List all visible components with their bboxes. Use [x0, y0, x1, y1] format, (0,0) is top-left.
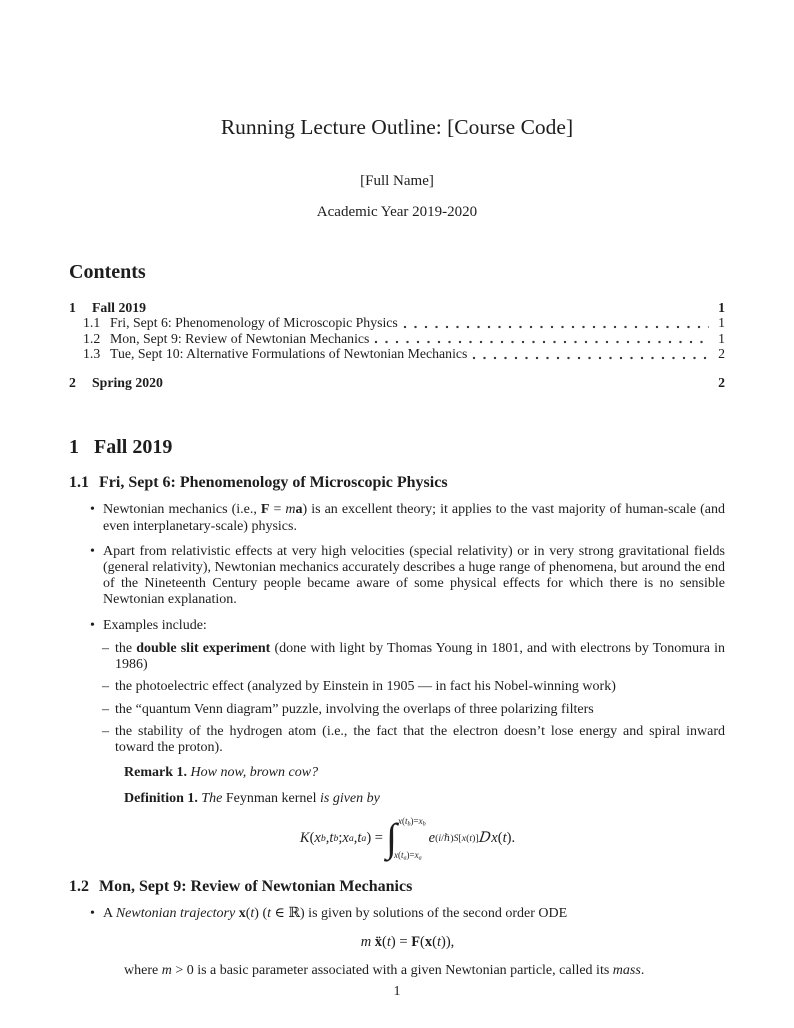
toc-entry-number: 2: [69, 375, 92, 390]
toc-entry-newtonian-review[interactable]: 1.2 Mon, Sept 9: Review of Newtonian Mec…: [69, 331, 725, 346]
subsection-title: Mon, Sept 9: Review of Newtonian Mechani…: [99, 878, 412, 895]
sub-item-double-slit: – the double slit experiment (done with …: [102, 641, 725, 673]
sub-item-text: the “quantum Venn diagram” puzzle, invol…: [115, 702, 725, 718]
subsection-heading-newtonian-review: 1.2Mon, Sept 9: Review of Newtonian Mech…: [69, 878, 725, 896]
toc-entry-page: 2: [715, 375, 725, 390]
document-page: Running Lecture Outline: [Course Code] […: [0, 0, 794, 1028]
subsection-number: 1.1: [69, 474, 89, 491]
toc-entry-page: 1: [715, 315, 725, 330]
sub-item-text: the stability of the hydrogen atom (i.e.…: [115, 724, 725, 756]
list-item-text: A Newtonian trajectory x(t) (t ∈ ℝ) is g…: [103, 906, 725, 922]
subsection-number: 1.2: [69, 878, 89, 895]
contents-heading: Contents: [69, 261, 725, 283]
toc-entry-label: Fall 2019: [92, 300, 146, 315]
bullet-icon: •: [90, 544, 103, 609]
toc-entry-number: 1.2: [83, 331, 110, 346]
toc-entry-number: 1: [69, 300, 92, 315]
list-item-text: Apart from relativistic effects at very …: [103, 544, 725, 609]
dash-icon: –: [102, 702, 115, 718]
sub-item-hydrogen-stability: – the stability of the hydrogen atom (i.…: [102, 724, 725, 756]
bullet-icon: •: [90, 618, 103, 634]
toc-entry-number: 1.1: [83, 315, 110, 330]
equation-feynman-kernel: K(xb, tb; xa, ta) = ∫x(tb)=xbx(ta)=xae(i…: [90, 815, 725, 863]
bullet-icon: •: [90, 502, 103, 534]
toc-entry-label: Spring 2020: [92, 375, 163, 390]
toc-leader: [151, 309, 709, 313]
sub-item-text: the double slit experiment (done with li…: [115, 641, 725, 673]
toc-entry-spring-2020[interactable]: 2 Spring 2020 2: [69, 375, 725, 390]
list-item-newtonian-excellent: • Newtonian mechanics (i.e., F = ma) is …: [90, 502, 725, 534]
sub-bullet-list: – the double slit experiment (done with …: [102, 641, 725, 756]
toc-entry-phenomenology[interactable]: 1.1 Fri, Sept 6: Phenomenology of Micros…: [69, 315, 725, 330]
toc-entry-page: 1: [715, 331, 725, 346]
toc-dot-leader: [374, 340, 709, 344]
subsection-heading-phenomenology: 1.1Fri, Sept 6: Phenomenology of Microsc…: [69, 474, 725, 492]
toc-entry-label: Mon, Sept 9: Review of Newtonian Mechani…: [110, 331, 369, 346]
toc-entry-label: Fri, Sept 6: Phenomenology of Microscopi…: [110, 315, 398, 330]
toc-entry-label: Tue, Sept 10: Alternative Formulations o…: [110, 346, 467, 361]
remark-1: Remark 1. How now, brown cow?: [124, 765, 725, 781]
document-date: Academic Year 2019-2020: [69, 204, 725, 220]
document-author: [Full Name]: [69, 173, 725, 189]
sub-item-text: the photoelectric effect (analyzed by Ei…: [115, 679, 725, 695]
section-number: 1: [69, 436, 79, 458]
toc-entry-alternative-formulations[interactable]: 1.3 Tue, Sept 10: Alternative Formulatio…: [69, 346, 725, 361]
dash-icon: –: [102, 724, 115, 756]
dash-icon: –: [102, 641, 115, 673]
bullet-list: • A Newtonian trajectory x(t) (t ∈ ℝ) is…: [69, 906, 725, 980]
equation-newton-ode: m ẍ(t) = F(x(t)),: [90, 934, 725, 950]
document-content: Running Lecture Outline: [Course Code] […: [69, 0, 725, 980]
sub-item-photoelectric: – the photoelectric effect (analyzed by …: [102, 679, 725, 695]
section-title: Fall 2019: [94, 436, 172, 458]
list-item-text: Examples include:: [103, 618, 725, 634]
subsection-title: Fri, Sept 6: Phenomenology of Microscopi…: [99, 474, 448, 491]
definition-1: Definition 1. The Feynman kernel is give…: [124, 791, 725, 807]
toc-dot-leader: [403, 325, 709, 329]
toc-entry-page: 1: [715, 300, 725, 315]
toc-dot-leader: [472, 356, 709, 360]
toc-leader: [168, 384, 709, 388]
dash-icon: –: [102, 679, 115, 695]
toc-entry-fall-2019[interactable]: 1 Fall 2019 1: [69, 300, 725, 315]
bullet-icon: •: [90, 906, 103, 922]
toc-entry-number: 1.3: [83, 346, 110, 361]
sub-item-quantum-venn: – the “quantum Venn diagram” puzzle, inv…: [102, 702, 725, 718]
mass-definition-text: where m > 0 is a basic parameter associa…: [124, 963, 725, 979]
list-item-newtonian-trajectory: • A Newtonian trajectory x(t) (t ∈ ℝ) is…: [90, 906, 725, 922]
bullet-list: • Newtonian mechanics (i.e., F = ma) is …: [69, 502, 725, 862]
list-item-text: Newtonian mechanics (i.e., F = ma) is an…: [103, 502, 725, 534]
section-heading-fall-2019: 1Fall 2019: [69, 436, 725, 459]
page-number: 1: [0, 984, 794, 1000]
list-item-relativistic-effects: • Apart from relativistic effects at ver…: [90, 544, 725, 609]
toc-entry-page: 2: [715, 346, 725, 361]
document-title: Running Lecture Outline: [Course Code]: [69, 116, 725, 140]
table-of-contents: 1 Fall 2019 1 1.1 Fri, Sept 6: Phenomeno…: [69, 300, 725, 390]
list-item-examples-include: • Examples include:: [90, 618, 725, 634]
